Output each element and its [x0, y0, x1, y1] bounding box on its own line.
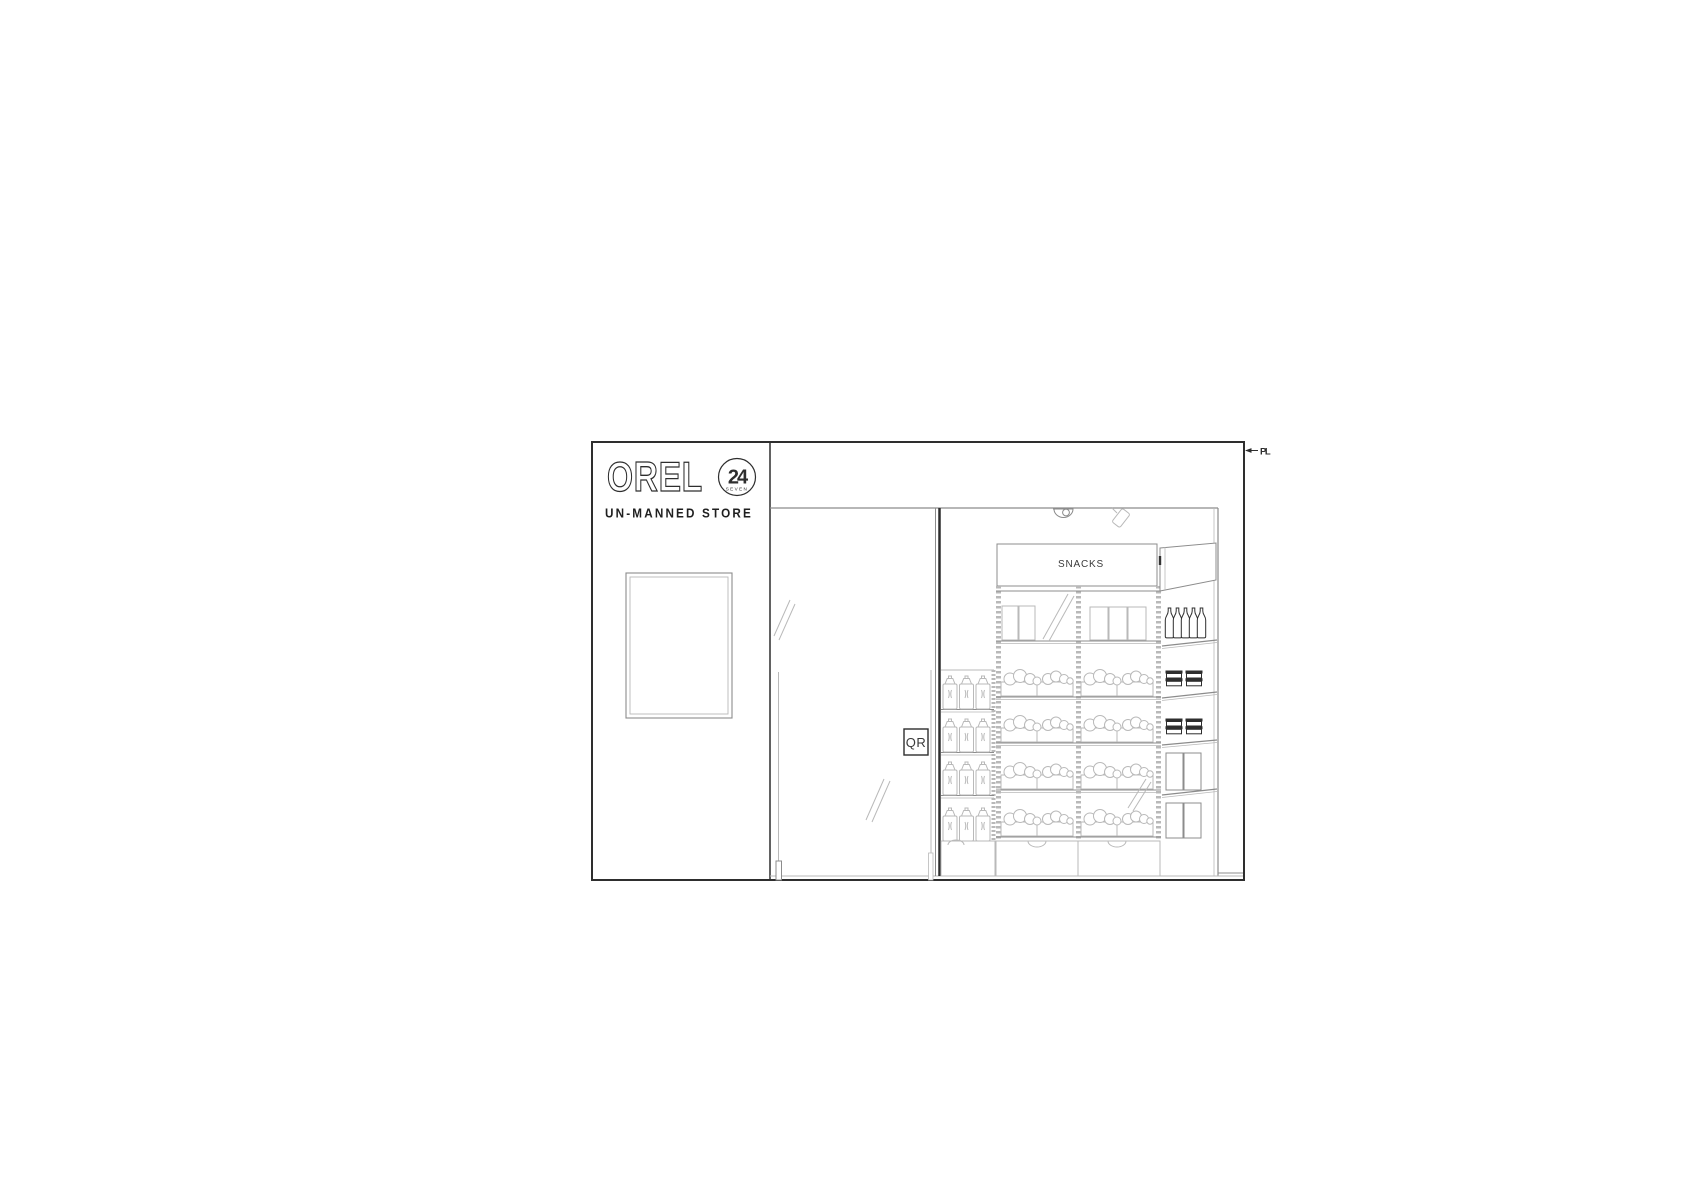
wine-bottles-row — [1165, 608, 1205, 638]
snacks-sign-label: SNACKS — [1058, 559, 1104, 570]
brand-logo: OREL — [607, 453, 703, 500]
page-background — [0, 0, 1701, 1200]
drink-cooler — [941, 670, 995, 876]
architectural-elevation: OREL 24 SEVEN UN-MANNED STORE QR — [0, 0, 1701, 1200]
snacks-sign: SNACKS — [997, 544, 1157, 586]
elevation-drawing: OREL 24 SEVEN UN-MANNED STORE QR — [0, 0, 1701, 1200]
gondola-base — [996, 841, 1160, 876]
qr-sign-label: QR — [906, 735, 927, 750]
badge-caption: SEVEN — [726, 487, 749, 492]
qr-sign: QR — [904, 729, 928, 755]
badge-number: 24 — [728, 467, 749, 489]
store-subtitle: UN-MANNED STORE — [605, 506, 753, 521]
door-floor-track — [776, 861, 782, 880]
cooler-base — [941, 840, 995, 876]
